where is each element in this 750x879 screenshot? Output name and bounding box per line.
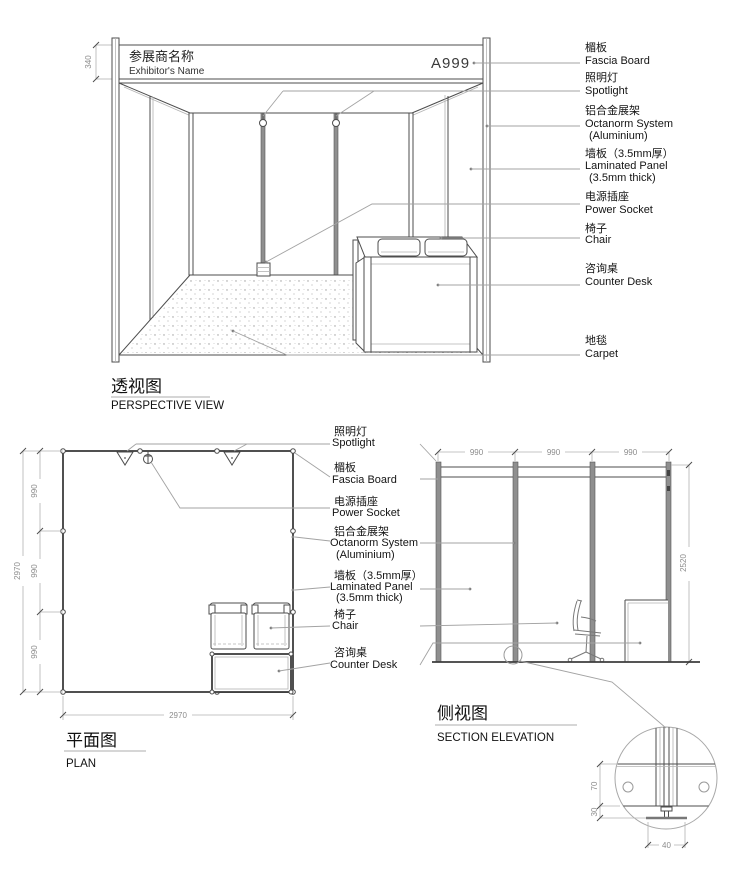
detail-foot bbox=[646, 807, 687, 818]
elevation-title-en: SECTION ELEVATION bbox=[437, 732, 554, 744]
elevation-post bbox=[436, 462, 441, 662]
elevation-title: 侧视图 SECTION ELEVATION bbox=[435, 704, 577, 744]
dim-detail-upper: 70 bbox=[590, 781, 599, 790]
plan-left-dimensions: 2970 990 990 990 bbox=[13, 448, 63, 695]
plan-bottom-dimension: 2970 bbox=[60, 696, 296, 720]
dim-wall-height: 2520 bbox=[679, 554, 688, 572]
plan-chair bbox=[209, 603, 247, 649]
socket-mark bbox=[667, 470, 670, 476]
dim-plan-width: 2970 bbox=[169, 711, 187, 720]
label-panel-en2: (3.5mm thick) bbox=[589, 172, 656, 184]
detail-post-section bbox=[615, 722, 717, 806]
label-fascia-cn: 楣板 bbox=[585, 40, 607, 54]
elevation-top-dimension: 990 990 990 bbox=[435, 446, 672, 461]
label-desk-cn: 咨询桌 bbox=[334, 645, 367, 659]
plan-chairs bbox=[209, 603, 290, 649]
label-desk-cn: 咨询桌 bbox=[585, 261, 618, 275]
label-spotlight-en: Spotlight bbox=[585, 85, 628, 97]
plan-chair bbox=[252, 603, 290, 649]
label-octanorm-en1: Octanorm System bbox=[585, 118, 673, 130]
elevation-post bbox=[513, 462, 518, 662]
label-socket-en: Power Socket bbox=[585, 204, 653, 216]
label-desk-en: Counter Desk bbox=[585, 276, 653, 288]
plan-spotlights bbox=[117, 451, 240, 465]
plan-title: 平面图 PLAN bbox=[64, 731, 146, 770]
fascia-board: 参展商名称 Exhibitor's Name A999 bbox=[119, 45, 483, 83]
dim-plan-depth: 2970 bbox=[13, 562, 22, 580]
exhibitor-name-cn: 参展商名称 bbox=[129, 49, 194, 64]
detail-bolt-hole bbox=[699, 782, 709, 792]
plan-labels: 照明灯 Spotlight 楣板 Fascia Board 电源插座 Power… bbox=[330, 425, 423, 671]
back-mid-post-1 bbox=[261, 113, 265, 275]
spotlight-icon bbox=[333, 120, 340, 127]
label-socket-en: Power Socket bbox=[332, 507, 400, 519]
label-fascia-cn: 楣板 bbox=[334, 460, 356, 474]
dim-plan-bay-1: 990 bbox=[30, 484, 39, 498]
dim-detail-lower: 30 bbox=[590, 807, 599, 816]
plan-socket-symbol bbox=[144, 451, 153, 464]
label-octanorm-cn: 铝合金展架 bbox=[334, 524, 389, 538]
dim-elev-bay-1: 990 bbox=[470, 448, 484, 457]
label-octanorm-en2: (Aluminium) bbox=[589, 130, 648, 142]
perspective-title-en: PERSPECTIVE VIEW bbox=[111, 400, 224, 412]
label-octanorm-en2: (Aluminium) bbox=[336, 549, 395, 561]
booth-technical-drawing: 340 参展商名称 Exhibitor's Name A999 bbox=[0, 0, 750, 879]
plan-title-en: PLAN bbox=[66, 758, 96, 770]
label-chair-en: Chair bbox=[332, 620, 359, 632]
back-left-post bbox=[189, 113, 193, 275]
perspective-labels: 楣板 Fascia Board 照明灯 Spotlight 铝合金展架 Octa… bbox=[585, 40, 674, 360]
perspective-view: 340 参展商名称 Exhibitor's Name A999 bbox=[84, 38, 674, 412]
plan-counter-desk bbox=[210, 652, 293, 694]
dim-fascia-height: 340 bbox=[84, 55, 93, 69]
perspective-title: 透视图 PERSPECTIVE VIEW bbox=[111, 377, 224, 412]
fascia-height-dimension: 340 bbox=[84, 42, 112, 82]
label-spotlight-cn: 照明灯 bbox=[585, 71, 618, 84]
back-right-post bbox=[409, 113, 413, 238]
booth-number: A999 bbox=[431, 55, 470, 72]
elevation-height-dimension: 2520 bbox=[671, 462, 695, 665]
back-mid-post-2 bbox=[334, 113, 338, 275]
label-chair-cn: 椅子 bbox=[334, 607, 356, 621]
dim-elev-bay-2: 990 bbox=[547, 448, 561, 457]
label-chair-cn: 椅子 bbox=[585, 221, 607, 235]
elevation-desk bbox=[625, 600, 668, 662]
label-spotlight-en: Spotlight bbox=[332, 437, 375, 449]
elevation-title-cn: 侧视图 bbox=[437, 704, 488, 723]
perspective-title-cn: 透视图 bbox=[111, 377, 162, 396]
dim-elev-bay-3: 990 bbox=[624, 448, 638, 457]
label-panel-cn: 墙板（3.5mm厚） bbox=[334, 568, 423, 582]
section-elevation: 990 990 990 2520 bbox=[420, 444, 700, 744]
plan-title-cn: 平面图 bbox=[66, 731, 117, 750]
label-panel-cn: 墙板（3.5mm厚） bbox=[585, 146, 674, 160]
socket-mark bbox=[667, 486, 670, 491]
spotlight-icons bbox=[260, 113, 340, 127]
elevation-chair bbox=[568, 600, 604, 662]
spotlight-icon bbox=[260, 120, 267, 127]
label-panel-en2: (3.5mm thick) bbox=[336, 592, 403, 604]
label-octanorm-en1: Octanorm System bbox=[330, 537, 418, 549]
detail-circle: 70 30 40 bbox=[590, 722, 717, 850]
detail-bolt-hole bbox=[623, 782, 633, 792]
label-carpet-cn: 地毯 bbox=[585, 333, 607, 347]
plan-view: 2970 990 990 990 2970 bbox=[13, 425, 423, 770]
label-fascia-en: Fascia Board bbox=[585, 55, 650, 67]
label-octanorm-cn: 铝合金展架 bbox=[585, 103, 640, 117]
dim-plan-bay-2: 990 bbox=[30, 564, 39, 578]
label-desk-en: Counter Desk bbox=[330, 659, 398, 671]
dim-detail-foot: 40 bbox=[662, 841, 671, 850]
label-carpet-en: Carpet bbox=[585, 348, 618, 360]
power-socket bbox=[257, 263, 270, 276]
chair-back bbox=[425, 239, 467, 256]
exhibitor-name-en: Exhibitor's Name bbox=[129, 66, 205, 77]
chair-back bbox=[378, 239, 420, 256]
label-chair-en: Chair bbox=[585, 234, 612, 246]
drawing-svg: 340 参展商名称 Exhibitor's Name A999 bbox=[0, 0, 750, 879]
label-socket-cn: 电源插座 bbox=[585, 189, 629, 203]
label-socket-cn: 电源插座 bbox=[334, 494, 378, 508]
label-fascia-en: Fascia Board bbox=[332, 474, 397, 486]
label-panel-en1: Laminated Panel bbox=[585, 160, 668, 172]
dim-plan-bay-3: 990 bbox=[30, 645, 39, 659]
